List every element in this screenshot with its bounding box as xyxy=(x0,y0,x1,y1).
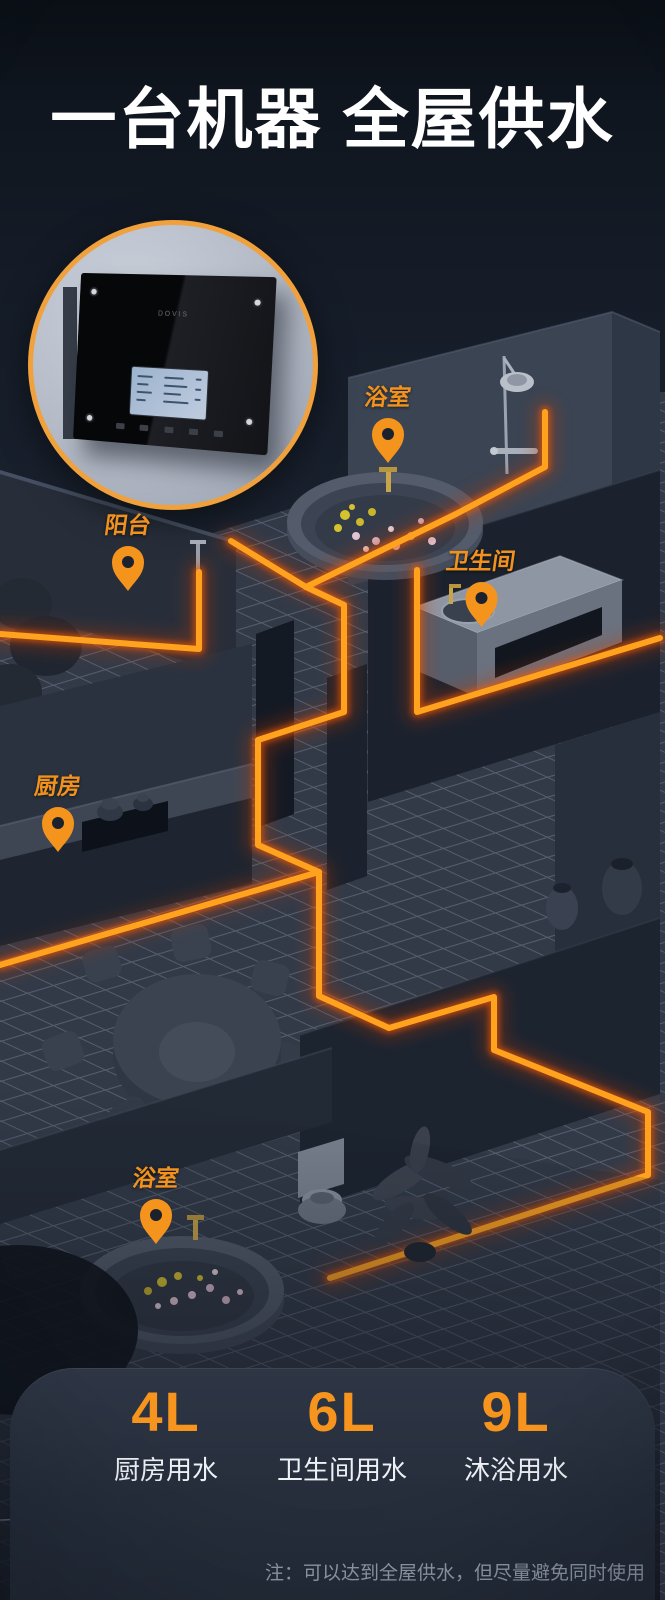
map-pin-icon xyxy=(41,806,75,852)
lcd-display xyxy=(130,367,208,420)
stat-kitchen: 4L 厨房用水 xyxy=(114,1384,218,1487)
screw-icon xyxy=(254,299,261,305)
stat-value: 6L xyxy=(277,1384,407,1440)
map-pin-icon xyxy=(371,417,405,463)
screw-icon xyxy=(246,419,253,426)
pin-label: 浴室 xyxy=(363,378,414,412)
map-pin-icon xyxy=(139,1198,173,1244)
stat-value: 9L xyxy=(464,1384,568,1440)
brand-logo: DOVIS xyxy=(79,308,275,322)
pin-label: 卫生间 xyxy=(444,542,518,576)
touch-buttons xyxy=(116,423,223,437)
pin-balcony: 阳台 xyxy=(105,506,151,591)
pin-bathroom-top: 浴室 xyxy=(365,378,411,463)
poster: 一台机器 全屋供水 DOVIS 浴室 阳台 xyxy=(0,0,665,1600)
pin-bathroom-bottom: 浴室 xyxy=(133,1159,179,1244)
stat-shower: 9L 沐浴用水 xyxy=(464,1384,568,1487)
pin-kitchen: 厨房 xyxy=(35,767,81,852)
pin-label: 厨房 xyxy=(33,767,84,801)
map-pin-icon xyxy=(111,545,145,591)
screw-icon xyxy=(91,289,97,295)
page-title: 一台机器 全屋供水 xyxy=(0,66,665,162)
stat-label: 卫生间用水 xyxy=(277,1450,407,1487)
screw-icon xyxy=(87,415,93,421)
pin-label: 阳台 xyxy=(103,506,154,540)
water-heater-unit: DOVIS xyxy=(73,273,277,455)
pin-label: 浴室 xyxy=(131,1159,182,1193)
stat-washroom: 6L 卫生间用水 xyxy=(277,1384,407,1487)
stat-label: 沐浴用水 xyxy=(464,1450,568,1487)
map-pin-icon xyxy=(464,581,498,627)
footnote: 注：可以达到全屋供水，但尽量避免同时使用 xyxy=(265,1558,645,1585)
stat-label: 厨房用水 xyxy=(114,1450,218,1487)
pin-washroom: 卫生间 xyxy=(447,542,516,627)
stat-value: 4L xyxy=(114,1384,218,1440)
device-inset: DOVIS xyxy=(28,220,318,510)
